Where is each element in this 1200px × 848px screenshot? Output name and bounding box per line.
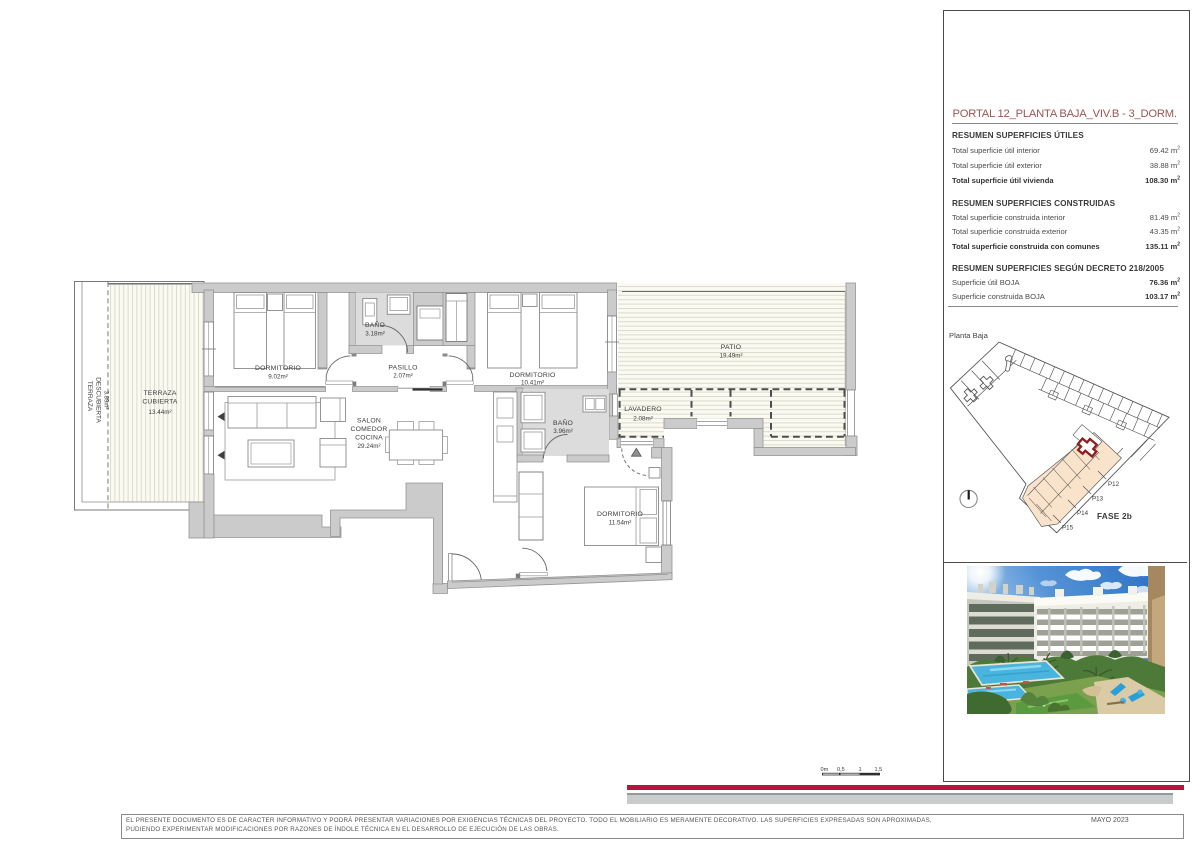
svg-text:0,5: 0,5 (837, 767, 845, 773)
svg-text:DORMITORIO: DORMITORIO (509, 372, 555, 379)
svg-text:BAÑO: BAÑO (553, 418, 573, 427)
svg-text:2.07m²: 2.07m² (393, 373, 413, 380)
svg-text:29.24m²: 29.24m² (357, 443, 380, 450)
svg-text:9.02m²: 9.02m² (268, 374, 288, 381)
svg-text:PASILLO: PASILLO (388, 365, 417, 372)
svg-text:TERRAZA: TERRAZA (143, 390, 176, 397)
svg-text:1: 1 (859, 767, 862, 773)
svg-text:DESCUBIERTA: DESCUBIERTA (95, 377, 102, 423)
svg-text:SALON: SALON (357, 418, 381, 425)
svg-text:PATIO: PATIO (721, 344, 741, 351)
svg-text:LAVADERO: LAVADERO (624, 406, 662, 413)
svg-text:CUBIERTA: CUBIERTA (142, 399, 178, 406)
svg-text:13.44m²: 13.44m² (148, 409, 171, 416)
svg-text:DORMITORIO: DORMITORIO (255, 365, 301, 372)
svg-text:3.89m²: 3.89m² (103, 391, 109, 410)
svg-text:3.18m²: 3.18m² (365, 331, 385, 338)
svg-text:0m: 0m (821, 767, 829, 773)
svg-text:1,5: 1,5 (875, 767, 883, 773)
svg-text:10.41m²: 10.41m² (521, 380, 544, 387)
svg-text:3.96m²: 3.96m² (553, 428, 573, 435)
svg-text:COCINA: COCINA (355, 435, 383, 442)
svg-text:11.54m²: 11.54m² (609, 520, 632, 527)
svg-text:TERRAZA: TERRAZA (86, 381, 93, 412)
svg-text:BAÑO: BAÑO (365, 320, 385, 329)
svg-text:19.49m²: 19.49m² (719, 353, 742, 360)
svg-text:COMEDOR: COMEDOR (351, 426, 388, 433)
svg-text:2.08m²: 2.08m² (633, 416, 653, 423)
svg-text:DORMITORIO: DORMITORIO (597, 511, 643, 518)
